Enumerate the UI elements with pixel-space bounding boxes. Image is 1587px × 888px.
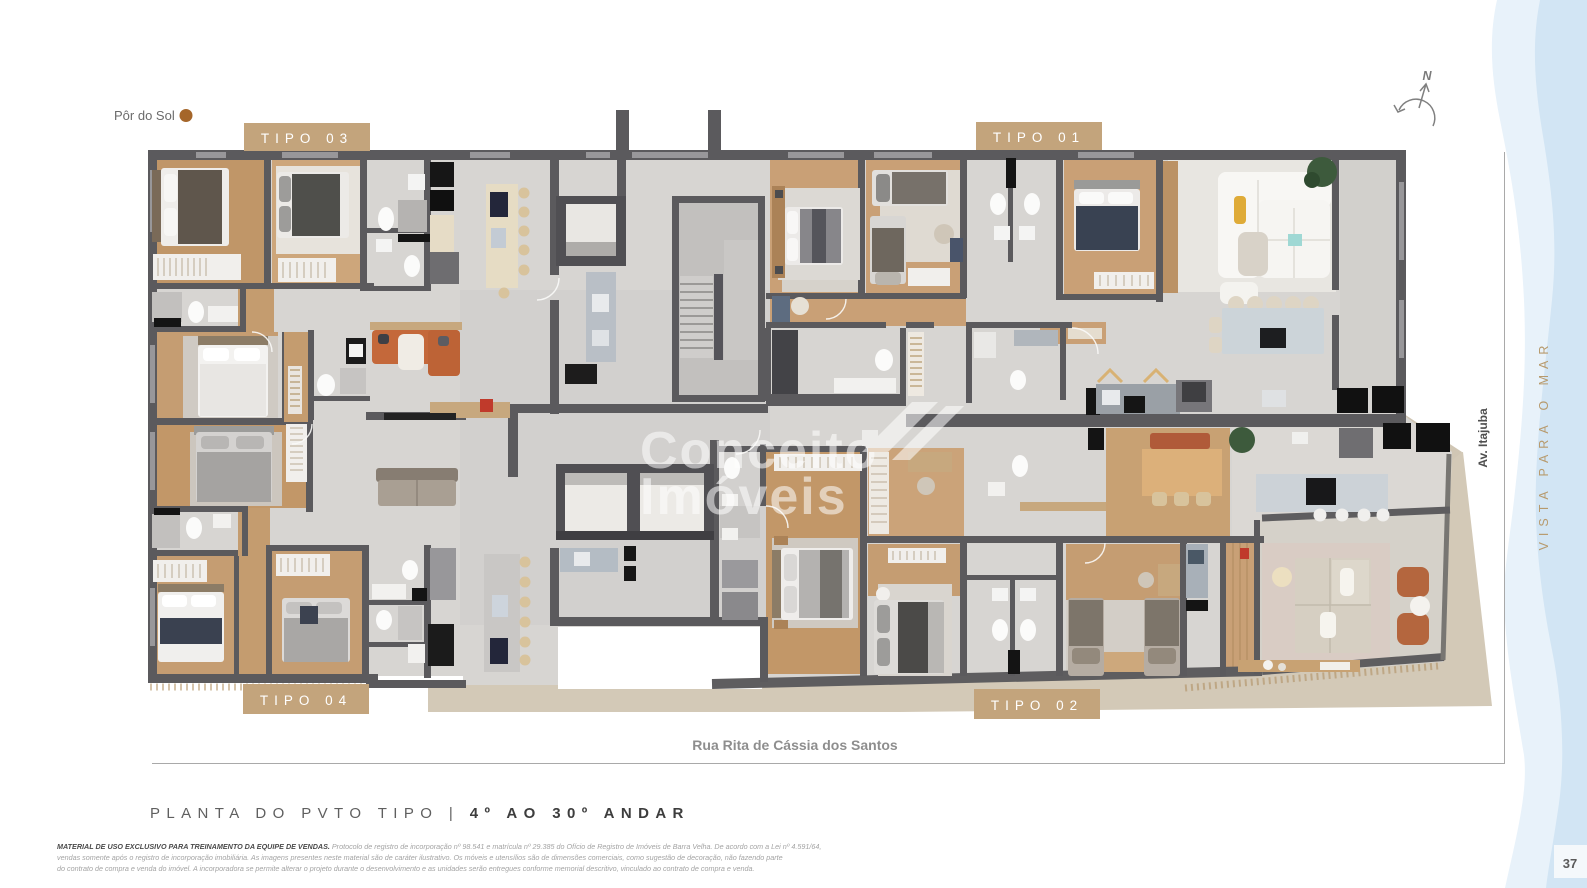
svg-text:37: 37 <box>1563 856 1577 871</box>
svg-text:vendas somente após o registro: vendas somente após o registro de incorp… <box>57 853 783 862</box>
svg-text:do contrato de compra e venda: do contrato de compra e venda do imóvel.… <box>57 864 754 873</box>
svg-text:N: N <box>1422 69 1432 83</box>
svg-text:MATERIAL DE USO EXCLUSIVO PARA: MATERIAL DE USO EXCLUSIVO PARA TREINAMEN… <box>57 842 821 851</box>
svg-text:TIPO 01: TIPO 01 <box>993 130 1085 145</box>
svg-text:VISTA PARA O MAR: VISTA PARA O MAR <box>1537 340 1551 551</box>
svg-text:TIPO 03: TIPO 03 <box>261 131 353 146</box>
svg-text:Av. Itajuba: Av. Itajuba <box>1476 408 1490 468</box>
svg-text:Imóveis: Imóveis <box>640 468 848 526</box>
svg-text:PLANTA DO PVTO TIPO | 4º AO: PLANTA DO PVTO TIPO | 4º AO 30º ANDAR <box>150 805 690 822</box>
svg-text:TIPO 02: TIPO 02 <box>991 698 1083 713</box>
svg-text:Rua Rita de Cássia dos Santos: Rua Rita de Cássia dos Santos <box>692 737 898 753</box>
svg-text:TIPO 04: TIPO 04 <box>260 693 352 708</box>
svg-text:Pôr do Sol: Pôr do Sol <box>114 108 175 123</box>
